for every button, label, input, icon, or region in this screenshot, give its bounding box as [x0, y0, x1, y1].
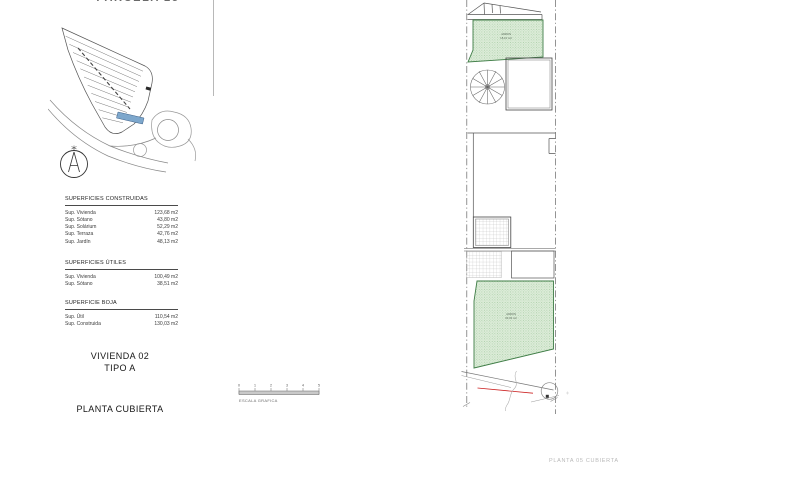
right-edge-notch: [549, 139, 556, 154]
skylight-lower: [467, 252, 502, 278]
survey-cross: [566, 392, 569, 395]
garden-top-area-value: 18,10 m2: [500, 36, 512, 40]
svg-text:4: 4: [302, 384, 304, 388]
lower-roof-slab: [512, 251, 555, 278]
sheet-footer-label: PLANTA 05 CUBIERTA: [549, 458, 619, 464]
manhole-circle: [541, 383, 558, 400]
terrace-walls: [468, 133, 556, 217]
manhole-marker: [546, 395, 549, 398]
bottom-strip: [462, 371, 570, 411]
red-boundary-line: [478, 388, 534, 393]
dwelling-title: VIVIENDA 02 TIPO A: [68, 350, 172, 374]
table-header: SUPERFICIE BOJA: [65, 300, 178, 310]
table-row: Sup. Jardín48,13 m2: [65, 239, 178, 246]
garden-top-area: [468, 20, 543, 62]
parcel-title: PARCELA 25: [68, 0, 208, 4]
drawing-sheet: PARCELA 25: [0, 0, 788, 477]
small-blob: [134, 144, 147, 157]
north-arrow-icon: [57, 144, 93, 180]
table-row: Sup. Sótano38,51 m2: [65, 281, 178, 288]
table-row: Sup. Construida130,03 m2: [65, 321, 178, 328]
upper-roof-volume: [506, 58, 552, 110]
parcel-title-clip: PARCELA 25: [68, 0, 208, 7]
vertical-divider: [213, 0, 214, 96]
pond-tail: [188, 139, 196, 161]
dwelling-number: VIVIENDA 02: [68, 350, 172, 362]
table-row: Sup. Sótano43,80 m2: [65, 217, 178, 224]
table-header: SUPERFICIES ÚTILES: [65, 260, 178, 270]
table-header: SUPERFICIES CONSTRUIDAS: [65, 196, 178, 206]
roof-floor-plan: JARDIN 18,10 m2: [450, 0, 585, 420]
svg-text:3: 3: [286, 384, 288, 388]
roundabout: [158, 120, 179, 141]
filled-parcel-marker: [146, 87, 152, 91]
table-row: Sup. Vivienda100,49 m2: [65, 274, 178, 281]
svg-text:2: 2: [270, 384, 272, 388]
dividing-band: [464, 249, 556, 252]
svg-text:5: 5: [318, 384, 320, 388]
table-superficies-construidas: SUPERFICIES CONSTRUIDAS Sup. Vivienda123…: [65, 196, 178, 246]
boundary-dashed-line: [78, 48, 130, 109]
skylight-mid: [473, 217, 511, 248]
spiral-staircase: [471, 70, 505, 104]
table-row: Sup. Vivienda123,68 m2: [65, 210, 178, 217]
table-superficies-utiles: SUPERFICIES ÚTILES Sup. Vivienda100,49 m…: [65, 260, 178, 288]
roof-wedge: [468, 3, 543, 20]
garden-bottom-area-value: 30,03 m2: [505, 316, 517, 320]
dwelling-type: TIPO A: [68, 362, 172, 374]
svg-text:1: 1: [254, 384, 256, 388]
garden-bottom-area: [474, 281, 554, 368]
plan-title: PLANTA CUBIERTA: [68, 404, 172, 414]
table-row: Sup. Terraza42,76 m2: [65, 231, 178, 238]
table-superficie-boja: SUPERFICIE BOJA Sup. Útil110,54 m2 Sup. …: [65, 300, 178, 328]
scale-bar-label: ESCALA GRAFICA: [239, 398, 278, 403]
table-row: Sup. Útil110,54 m2: [65, 314, 178, 321]
svg-text:0: 0: [238, 384, 240, 388]
table-row: Sup. Solárium52,29 m2: [65, 224, 178, 231]
graphic-scale-bar: 0 1 2 3 4 5 ESCALA GRAFICA: [236, 381, 328, 405]
